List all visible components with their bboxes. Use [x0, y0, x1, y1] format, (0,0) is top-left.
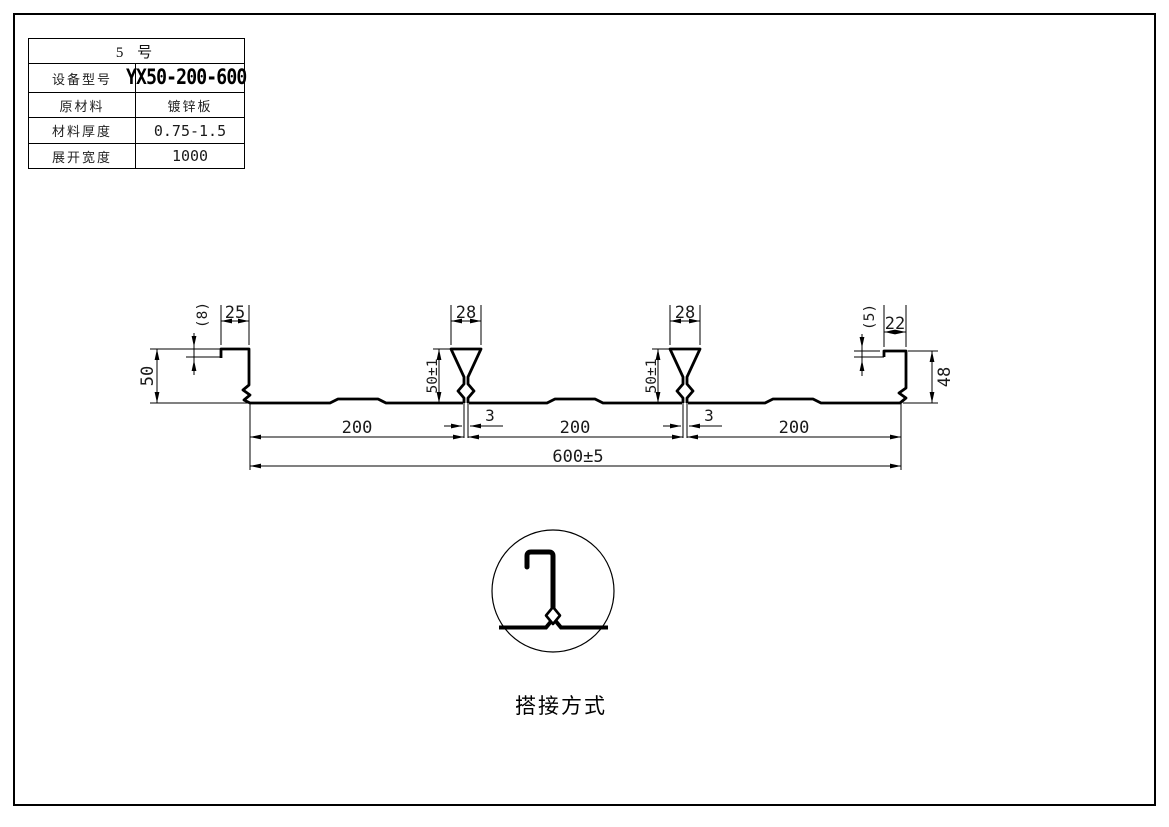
dim-left-lip: (8) [195, 302, 211, 328]
dim-pitch-1: 200 [342, 418, 373, 438]
rib2-outline [670, 349, 700, 403]
dim-rib1-slot: 3 [485, 406, 495, 425]
profile-base-right [688, 351, 906, 403]
overlap-detail [492, 530, 614, 652]
dim-overall-width: 600±5 [552, 447, 603, 467]
extension-lines [150, 305, 938, 470]
dim-left-height: 50 [138, 366, 158, 386]
profile-outline [221, 349, 906, 403]
dim-rib1-top-width: 28 [456, 303, 476, 323]
dim-rib1-height: 50±1 [425, 359, 441, 394]
drawing-sheet: 5 号 设备型号 YX50-200-600 原材料 镀锌板 材料厚度 0.75-… [0, 0, 1169, 827]
detail-hook [527, 552, 553, 608]
dimension-lines [157, 321, 932, 466]
rib1-outline [451, 349, 481, 403]
dim-right-lip: (5) [862, 304, 878, 330]
dim-left-top-width: 25 [225, 303, 245, 323]
dim-rib2-top-width: 28 [675, 303, 695, 323]
dim-rib2-slot: 3 [704, 406, 714, 425]
detail-caption: 搭接方式 [498, 690, 624, 720]
dim-rib2-height: 50±1 [644, 359, 660, 394]
dim-right-top-width: 22 [885, 314, 905, 334]
dim-right-height: 48 [935, 367, 955, 387]
dim-pitch-3: 200 [779, 418, 810, 438]
dim-pitch-2: 200 [560, 418, 591, 438]
profile-base-mid [469, 399, 682, 403]
dimension-texts: 50 (8) 25 28 28 50±1 50±1 3 3 (5) 22 48 … [138, 302, 955, 467]
